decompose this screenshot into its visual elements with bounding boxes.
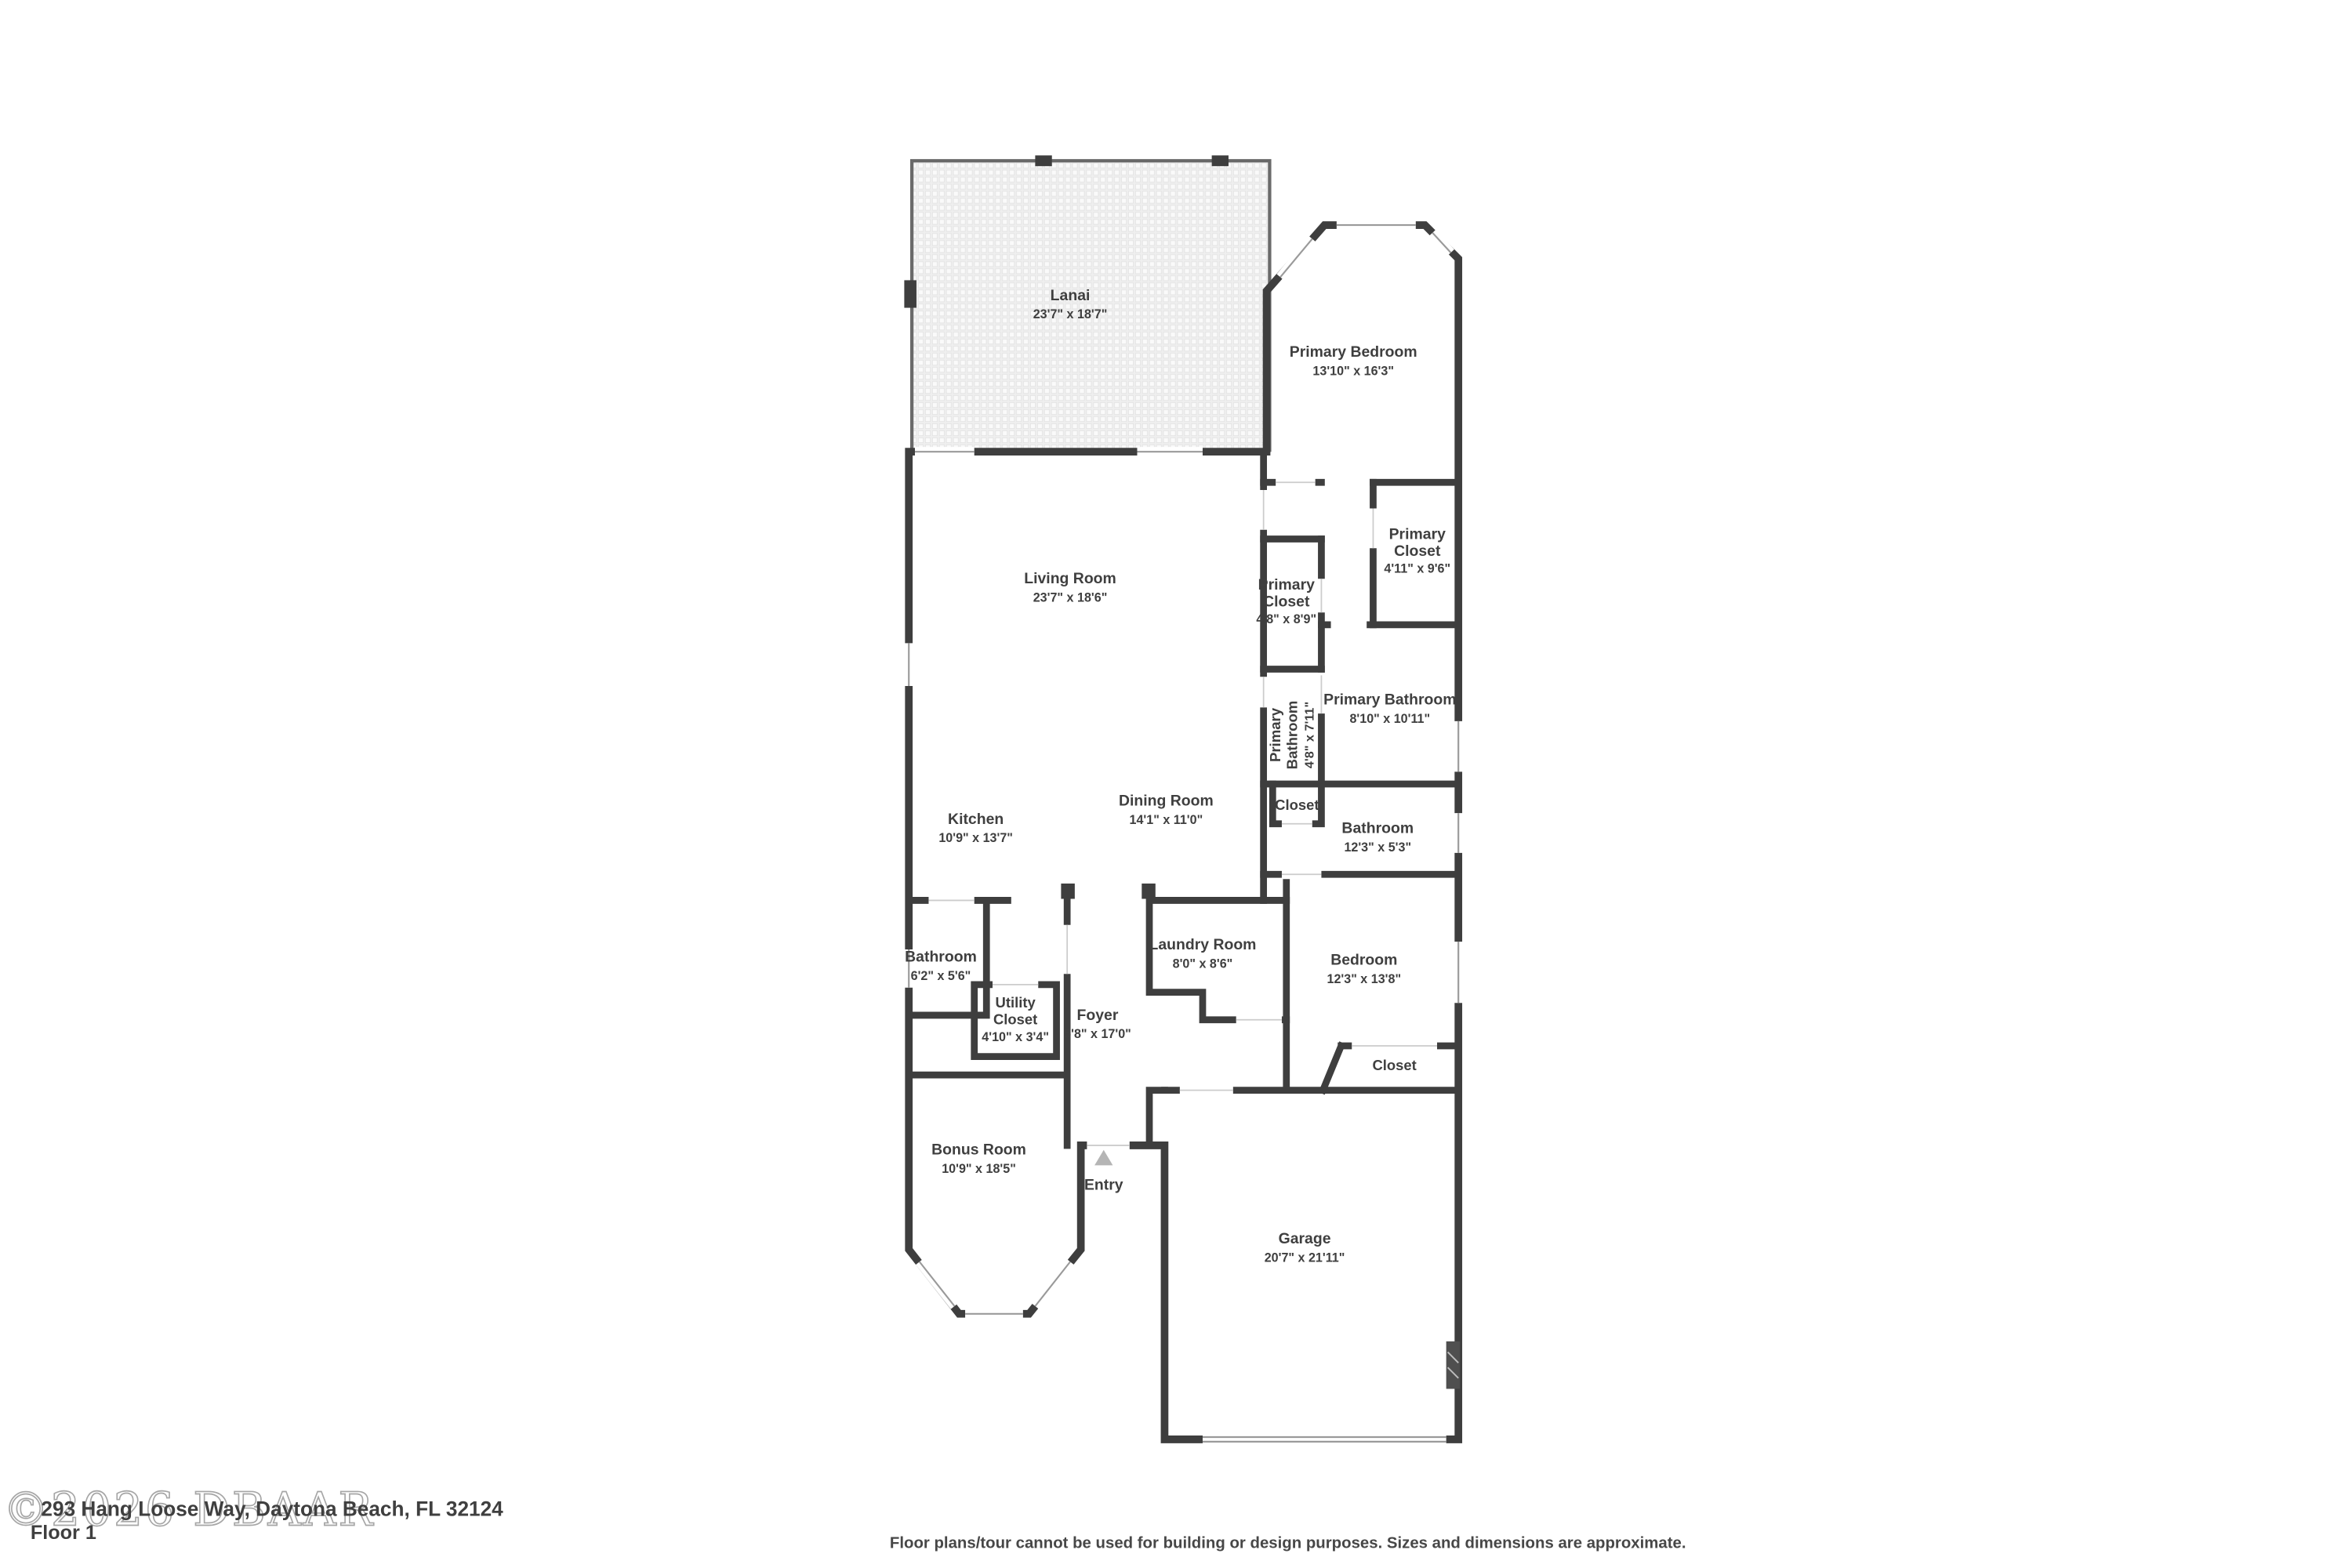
property-address: 293 Hang Loose Way, Daytona Beach, FL 32… [41,1497,503,1521]
svg-text:Kitchen: Kitchen [948,811,1004,828]
doorway-posts [1061,884,1155,899]
svg-text:10'9" x 18'5": 10'9" x 18'5" [942,1162,1016,1176]
svg-text:Closet: Closet [993,1011,1037,1028]
svg-text:13'10" x 16'3": 13'10" x 16'3" [1312,364,1394,378]
room-label-primary-bathroom: Primary Bathroom 8'10" x 10'11" [1323,691,1456,725]
svg-text:Bathroom: Bathroom [905,949,977,966]
svg-text:Laundry Room: Laundry Room [1149,936,1256,953]
room-label-kitchen: Kitchen 10'9" x 13'7" [938,811,1013,845]
room-label-garage: Garage 20'7" x 21'11" [1265,1230,1345,1265]
svg-text:12'3" x 5'3": 12'3" x 5'3" [1344,840,1411,855]
svg-text:Closet: Closet [1275,797,1319,813]
room-label-entry: Entry [1084,1177,1123,1194]
svg-text:4'11" x 9'6": 4'11" x 9'6" [1384,561,1450,575]
room-label-dining-room: Dining Room 14'1" x 11'0" [1119,792,1214,826]
room-label-bedroom: Bedroom 12'3" x 13'8" [1327,951,1401,985]
svg-text:Bathroom: Bathroom [1341,819,1414,837]
svg-text:Closet: Closet [1394,543,1441,560]
svg-text:Dining Room: Dining Room [1119,792,1214,809]
room-label-primary-bathroom-2: Primary Bathroom 4'8" x 7'11" [1267,701,1317,770]
room-label-primary-closet-hall: Primary Closet 4'8" x 8'9" [1256,576,1316,626]
room-label-bonus-room: Bonus Room 10'9" x 18'5" [931,1142,1026,1176]
svg-text:Closet: Closet [1263,593,1310,610]
floorplan-canvas: Lanai 23'7" x 18'7" Primary Bedroom 13'1… [0,0,2352,1568]
svg-text:Primary: Primary [1389,525,1446,543]
svg-text:4'8" x 8'9": 4'8" x 8'9" [1256,612,1316,626]
svg-text:6'2" x 5'6": 6'2" x 5'6" [911,969,971,983]
room-label-closet-bedroom: Closet [1372,1057,1416,1073]
svg-text:Living Room: Living Room [1024,570,1116,587]
svg-text:23'7" x 18'7": 23'7" x 18'7" [1033,307,1108,321]
footer: ©2026 DBAAR 293 Hang Loose Way, Daytona … [3,1483,1686,1552]
svg-text:Garage: Garage [1279,1230,1331,1247]
room-label-foyer: Foyer 5'8" x 17'0" [1064,1007,1131,1041]
lanai-screen-door [904,280,916,307]
room-label-bathroom-right: Bathroom 12'3" x 5'3" [1341,819,1414,854]
svg-text:20'7" x 21'11": 20'7" x 21'11" [1265,1250,1345,1265]
room-label-utility-closet: Utility Closet 4'10" x 3'4" [982,994,1049,1044]
room-label-bathroom-left: Bathroom 6'2" x 5'6" [905,949,977,983]
svg-text:10'9" x 13'7": 10'9" x 13'7" [938,831,1013,845]
svg-text:Bonus Room: Bonus Room [931,1142,1026,1159]
floor-label: Floor 1 [31,1522,96,1544]
svg-text:12'3" x 13'8": 12'3" x 13'8" [1327,972,1401,986]
garage-wall-block-icon [1446,1341,1460,1389]
svg-text:Utility: Utility [996,994,1036,1011]
lanai-post [1035,155,1051,166]
room-label-laundry-room: Laundry Room 8'0" x 8'6" [1149,936,1256,971]
svg-text:Bedroom: Bedroom [1330,951,1397,968]
svg-text:Primary Bedroom: Primary Bedroom [1290,343,1417,361]
svg-text:Lanai: Lanai [1051,287,1091,304]
svg-text:Primary Bathroom: Primary Bathroom [1323,691,1456,708]
svg-text:14'1" x 11'0": 14'1" x 11'0" [1130,813,1203,827]
svg-text:8'10" x 10'11": 8'10" x 10'11" [1349,712,1430,726]
floorplan-page: Lanai 23'7" x 18'7" Primary Bedroom 13'1… [0,0,2352,1568]
svg-text:23'7" x 18'6": 23'7" x 18'6" [1033,591,1108,605]
lanai-post [1212,155,1229,166]
disclaimer-text: Floor plans/tour cannot be used for buil… [890,1534,1686,1552]
svg-text:4'10" x 3'4": 4'10" x 3'4" [982,1030,1049,1044]
room-label-closet-primary-hall: Closet [1275,797,1319,813]
svg-text:Primary: Primary [1267,707,1283,762]
room-label-primary-bedroom: Primary Bedroom 13'10" x 16'3" [1290,343,1417,378]
svg-text:Foyer: Foyer [1077,1007,1119,1024]
room-label-primary-closet-right: Primary Closet 4'11" x 9'6" [1384,525,1450,575]
room-label-living-room: Living Room 23'7" x 18'6" [1024,570,1116,604]
entry-direction-icon [1094,1150,1112,1166]
svg-text:Bathroom: Bathroom [1283,701,1300,770]
svg-text:Entry: Entry [1084,1177,1123,1194]
svg-text:Primary: Primary [1258,576,1315,593]
svg-text:4'8" x 7'11": 4'8" x 7'11" [1303,702,1317,768]
svg-text:Closet: Closet [1372,1057,1416,1073]
svg-text:5'8" x 17'0": 5'8" x 17'0" [1064,1027,1131,1041]
svg-text:8'0" x 8'6": 8'0" x 8'6" [1173,956,1233,971]
